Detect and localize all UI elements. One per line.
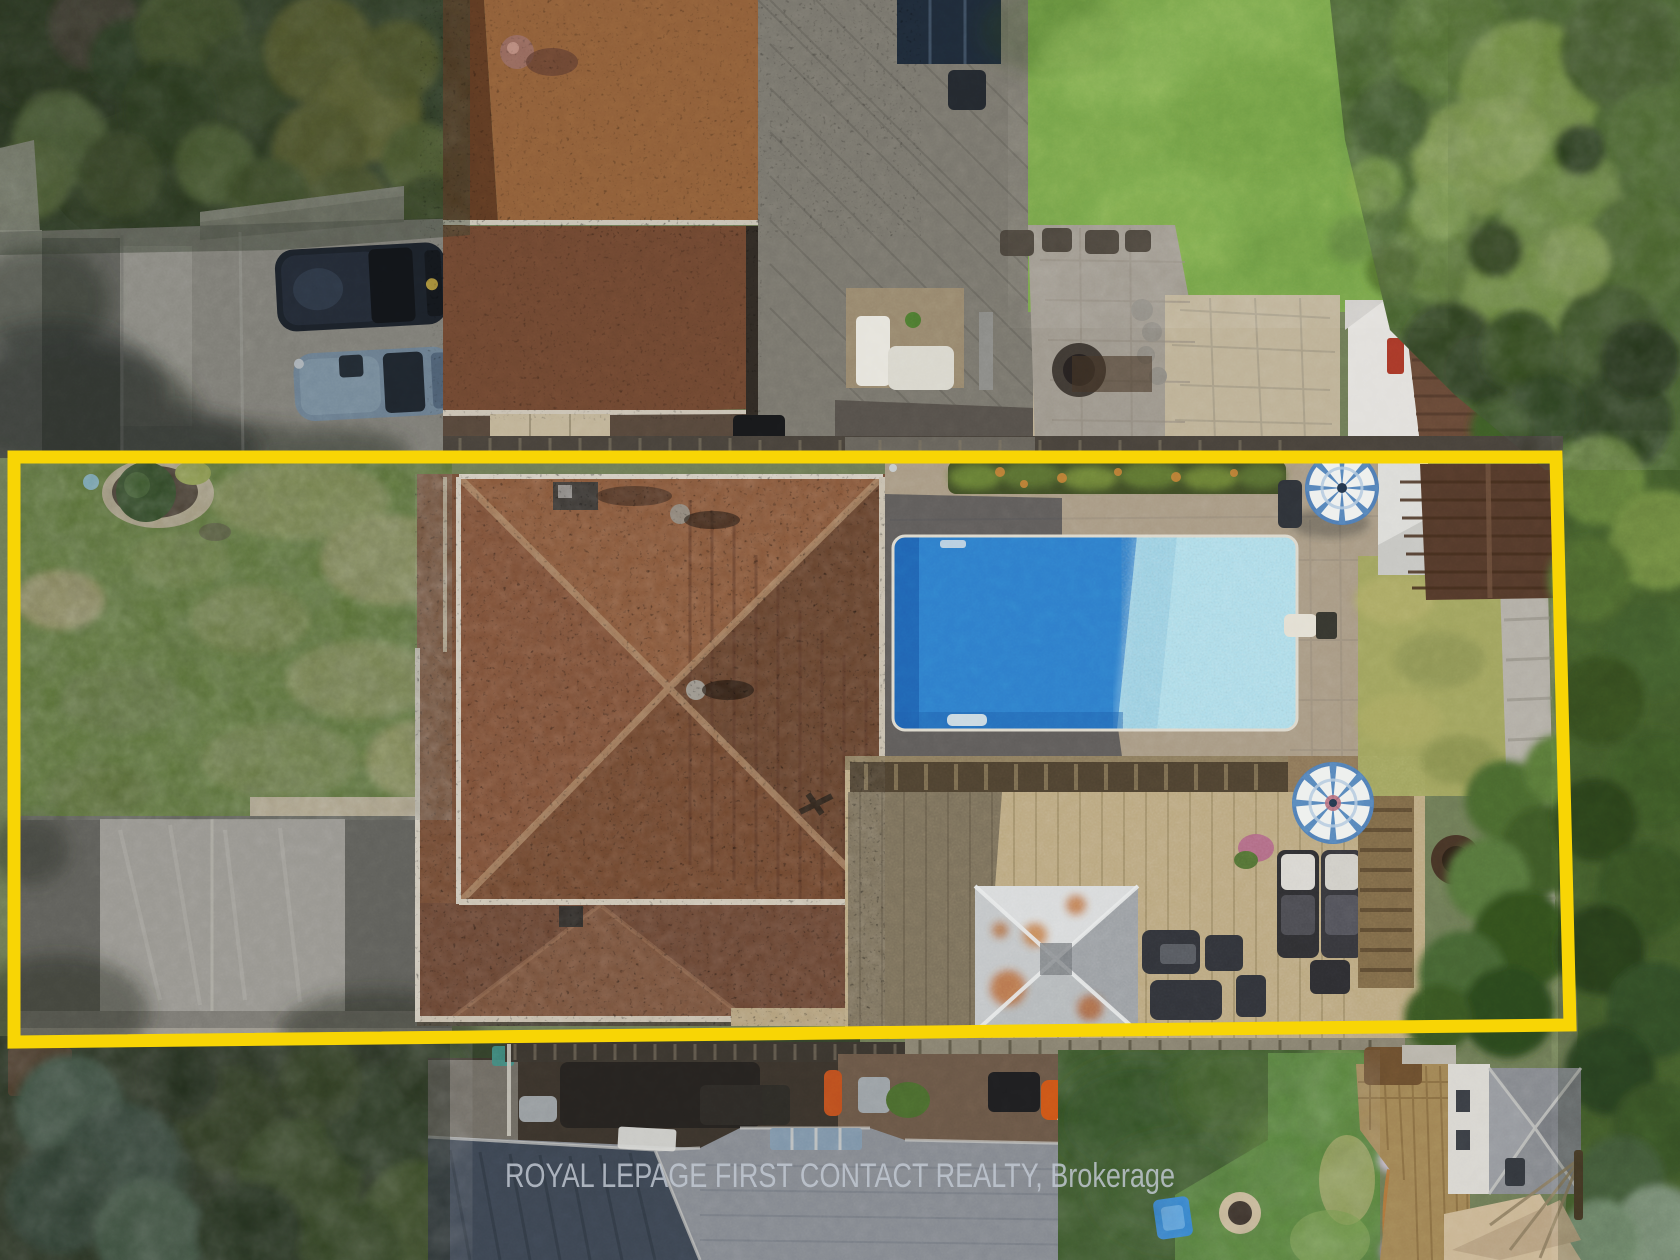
svg-text:ROYAL LEPAGE FIRST CONTACT REA: ROYAL LEPAGE FIRST CONTACT REALTY, Broke…: [505, 1157, 1175, 1195]
